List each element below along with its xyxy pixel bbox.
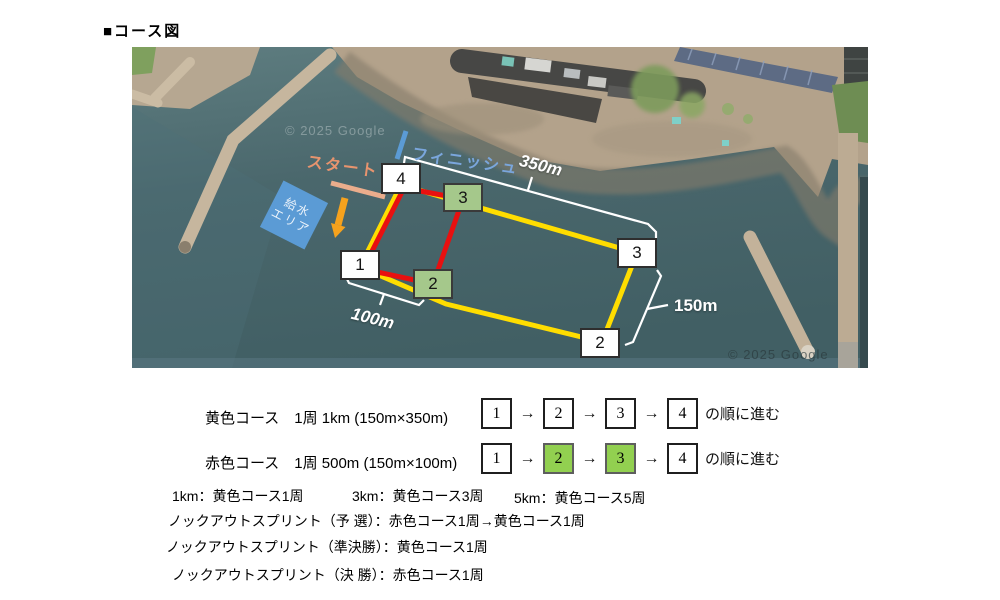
yellow-course-sequence: 1 → 2 → 3 → 4 の順に進む bbox=[481, 398, 780, 429]
start-line bbox=[331, 183, 385, 197]
arrow-right-icon: → bbox=[636, 450, 667, 468]
buoy-marker-2-inner: 2 bbox=[413, 269, 453, 299]
knockout-final-rule: ノックアウトスプリント（決 勝）：赤色コース1周 bbox=[172, 565, 484, 585]
bracket-150m bbox=[625, 270, 668, 345]
buoy-label: 3 bbox=[458, 188, 467, 208]
google-watermark-bottom: © 2025 Google bbox=[728, 347, 829, 362]
distance-rule-5km: 5km：黄色コース5周 bbox=[514, 488, 646, 508]
course-map: © 2025 Google © 2025 Google スタート フィニッシュ … bbox=[132, 47, 868, 368]
knockout-semifinal-rule: ノックアウトスプリント（準決勝）：黄色コース1周 bbox=[166, 537, 488, 557]
course-map-page: ■コース図 bbox=[0, 0, 1000, 600]
yellow-course-description: 黄色コース 1周 1km (150m×350m) bbox=[205, 407, 448, 428]
buoy-label: 1 bbox=[355, 255, 364, 275]
google-watermark-top: © 2025 Google bbox=[285, 123, 386, 138]
sequence-box-1: 1 bbox=[481, 443, 512, 474]
arrow-right-icon: → bbox=[574, 405, 605, 423]
sequence-box-3: 3 bbox=[605, 443, 636, 474]
red-course-description: 赤色コース 1周 500m (150m×100m) bbox=[205, 452, 457, 473]
knockout-qualifier-rule: ノックアウトスプリント（予 選）：赤色コース1周→黄色コース1周 bbox=[168, 511, 585, 531]
buoy-marker-1: 1 bbox=[340, 250, 380, 280]
sequence-suffix: の順に進む bbox=[705, 403, 780, 424]
course-lines-overlay bbox=[132, 47, 868, 368]
arrow-right-icon: → bbox=[512, 450, 543, 468]
arrow-right-icon: → bbox=[636, 405, 667, 423]
finish-line bbox=[397, 131, 406, 159]
distance-rule-1km: 1km：黄色コース1周 bbox=[172, 486, 304, 506]
buoy-marker-3-outer: 3 bbox=[617, 238, 657, 268]
buoy-label: 3 bbox=[632, 243, 641, 263]
arrow-right-icon: → bbox=[574, 450, 605, 468]
direction-arrow-icon bbox=[331, 198, 346, 238]
buoy-marker-4: 4 bbox=[381, 163, 421, 194]
sequence-box-2: 2 bbox=[543, 398, 574, 429]
arrow-right-icon: → bbox=[512, 405, 543, 423]
sequence-box-2: 2 bbox=[543, 443, 574, 474]
buoy-marker-2-outer: 2 bbox=[580, 328, 620, 358]
buoy-label: 2 bbox=[428, 274, 437, 294]
buoy-label: 2 bbox=[595, 333, 604, 353]
sequence-box-4: 4 bbox=[667, 443, 698, 474]
sequence-box-4: 4 bbox=[667, 398, 698, 429]
red-course-sequence: 1 → 2 → 3 → 4 の順に進む bbox=[481, 443, 780, 474]
sequence-suffix: の順に進む bbox=[705, 448, 780, 469]
distance-rule-3km: 3km：黄色コース3周 bbox=[352, 486, 484, 506]
sequence-box-1: 1 bbox=[481, 398, 512, 429]
sequence-box-3: 3 bbox=[605, 398, 636, 429]
distance-label-150m: 150m bbox=[674, 296, 717, 316]
buoy-label: 4 bbox=[396, 169, 405, 189]
buoy-marker-3-inner: 3 bbox=[443, 183, 483, 212]
page-title: ■コース図 bbox=[103, 20, 181, 41]
